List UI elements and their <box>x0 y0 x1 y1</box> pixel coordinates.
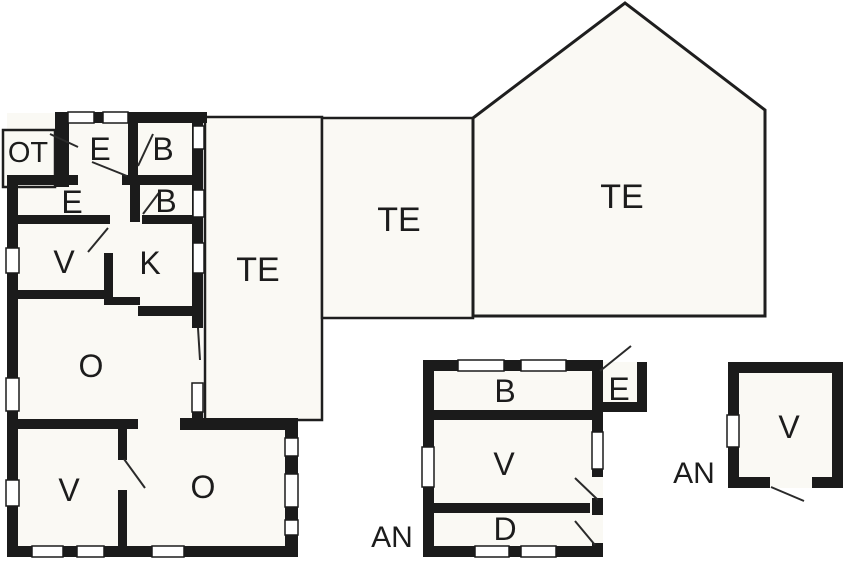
window <box>32 546 63 557</box>
window <box>285 520 298 535</box>
window <box>458 360 504 371</box>
annex1-name-label: AN <box>371 521 413 554</box>
window <box>285 438 298 456</box>
window <box>6 248 19 273</box>
annex2-name-label: AN <box>673 457 715 490</box>
room-label-entry2: E <box>61 184 82 220</box>
window <box>152 546 184 557</box>
annex2-room-label-v: V <box>778 409 800 445</box>
room-label-kitchen: K <box>139 245 160 281</box>
window <box>193 190 204 217</box>
room-label-porch: OT <box>8 137 49 169</box>
room-label-bath2: B <box>155 183 176 219</box>
window <box>6 378 19 411</box>
window <box>727 415 739 447</box>
window <box>68 112 94 123</box>
annex1-room-label-d: D <box>493 511 516 547</box>
window <box>521 360 566 371</box>
annex1-room-label-e: E <box>608 371 629 407</box>
annex1-room-label-b: B <box>494 373 515 409</box>
room-label-v-lower: V <box>58 472 80 508</box>
window <box>193 126 204 149</box>
window <box>192 383 203 412</box>
window <box>103 112 128 123</box>
floor-plan-svg: OT E B E B V K O V O TE TE TE B E V D AN… <box>0 0 848 565</box>
terrace-2-label: TE <box>377 201 420 239</box>
room-label-bath1: B <box>152 131 173 167</box>
room-label-o-lower: O <box>191 469 216 505</box>
room-label-o-mid: O <box>79 348 104 384</box>
room-label-entry1: E <box>89 131 110 167</box>
window <box>521 546 556 557</box>
annex1-room-label-v: V <box>493 446 515 482</box>
window <box>193 243 204 273</box>
window <box>285 474 298 507</box>
room-label-v-upper: V <box>53 244 75 280</box>
floor-plan-canvas: OT E B E B V K O V O TE TE TE B E V D AN… <box>0 0 848 565</box>
window <box>592 432 603 469</box>
window <box>6 480 19 506</box>
window <box>475 546 509 557</box>
window <box>422 447 434 487</box>
terrace-1-label: TE <box>236 251 279 289</box>
window <box>77 546 104 557</box>
terrace-3-label: TE <box>600 178 643 216</box>
